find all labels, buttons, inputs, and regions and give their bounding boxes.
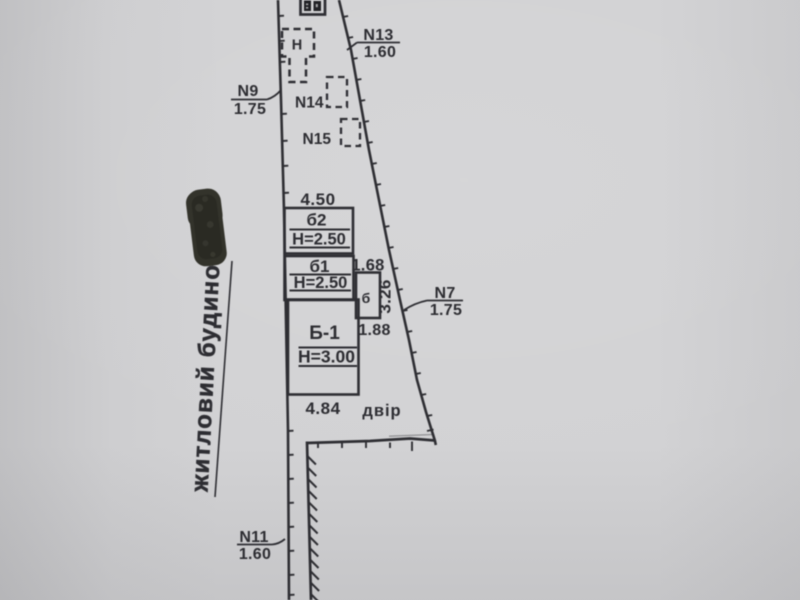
svg-text:1.75: 1.75 [234,101,266,118]
svg-text:1.60: 1.60 [239,546,271,563]
svg-text:Б-1: Б-1 [309,323,340,344]
svg-text:1.60: 1.60 [364,44,396,61]
svg-text:N11: N11 [239,529,268,546]
svg-text:Н=2.50: Н=2.50 [294,274,348,292]
svg-text:1.75: 1.75 [430,302,462,319]
svg-text:Н=3.00: Н=3.00 [298,347,355,367]
svg-text:4.84: 4.84 [305,399,340,418]
svg-text:Н=2.50: Н=2.50 [292,231,346,249]
svg-text:б2: б2 [307,211,327,230]
svg-text:двір: двір [362,402,401,420]
svg-text:3.26: 3.26 [376,279,395,313]
svg-text:Н: Н [292,38,302,54]
svg-text:N15: N15 [303,131,332,148]
svg-text:1.88: 1.88 [358,322,390,339]
svg-text:житловий будино: житловий будино [186,263,225,493]
svg-text:4.50: 4.50 [300,190,335,209]
svg-text:N13: N13 [363,27,393,44]
svg-text:N7: N7 [434,285,455,302]
svg-text:б: б [362,290,371,306]
svg-text:N9: N9 [237,83,258,100]
svg-text:N14: N14 [295,95,324,112]
